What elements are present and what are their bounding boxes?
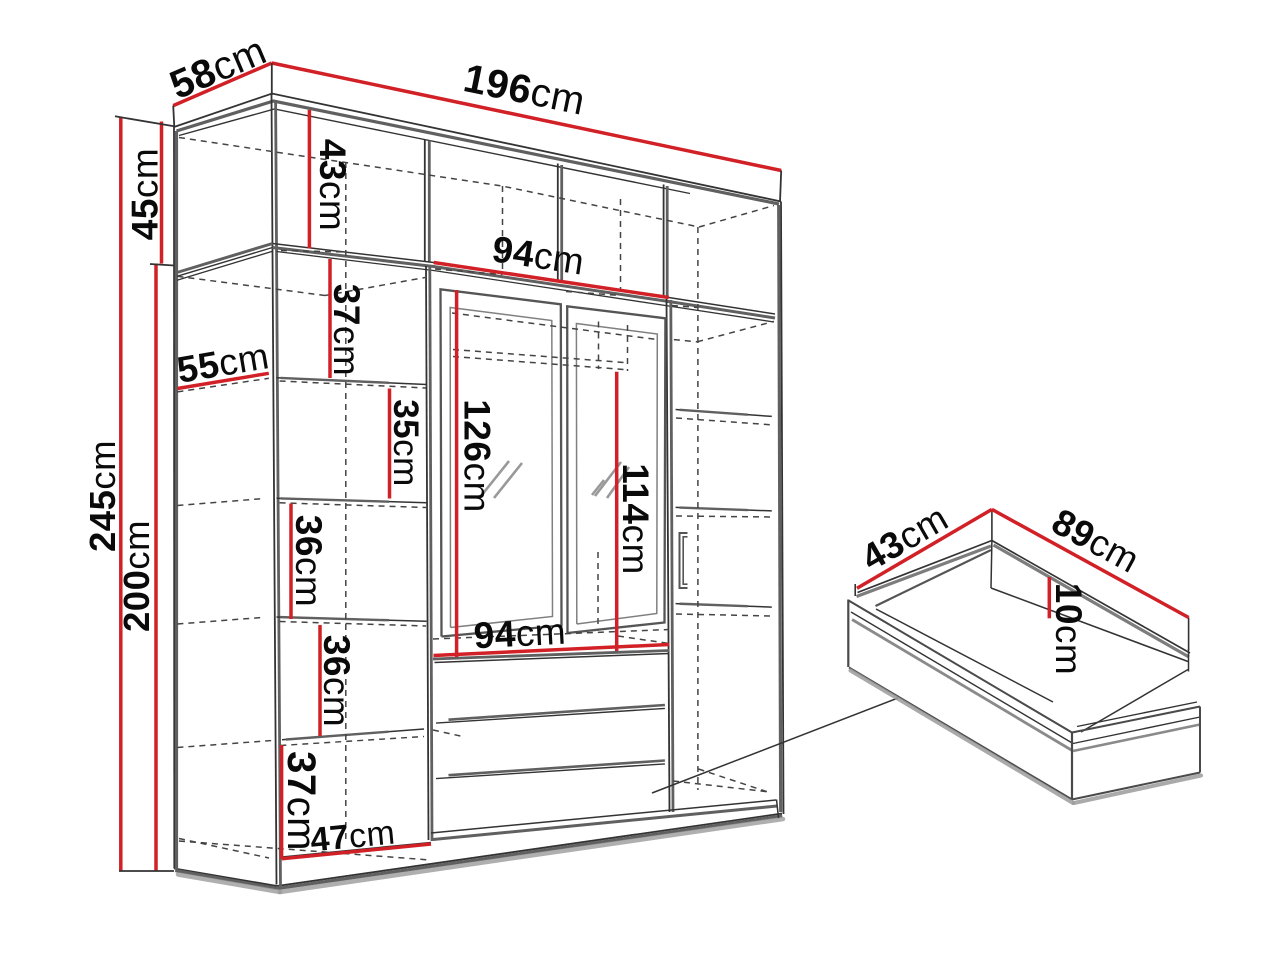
svg-text:47cm: 47cm <box>309 814 397 860</box>
svg-text:94cm: 94cm <box>473 610 568 656</box>
svg-text:43cm: 43cm <box>312 139 353 231</box>
svg-text:35cm: 35cm <box>386 399 425 487</box>
svg-text:114cm: 114cm <box>615 463 656 575</box>
svg-text:200cm: 200cm <box>116 520 157 632</box>
svg-text:36cm: 36cm <box>316 635 357 727</box>
svg-text:36cm: 36cm <box>288 515 329 607</box>
svg-text:10cm: 10cm <box>1048 583 1089 675</box>
svg-text:37cm: 37cm <box>326 284 367 376</box>
svg-text:45cm: 45cm <box>124 148 165 240</box>
svg-text:126cm: 126cm <box>457 399 498 513</box>
